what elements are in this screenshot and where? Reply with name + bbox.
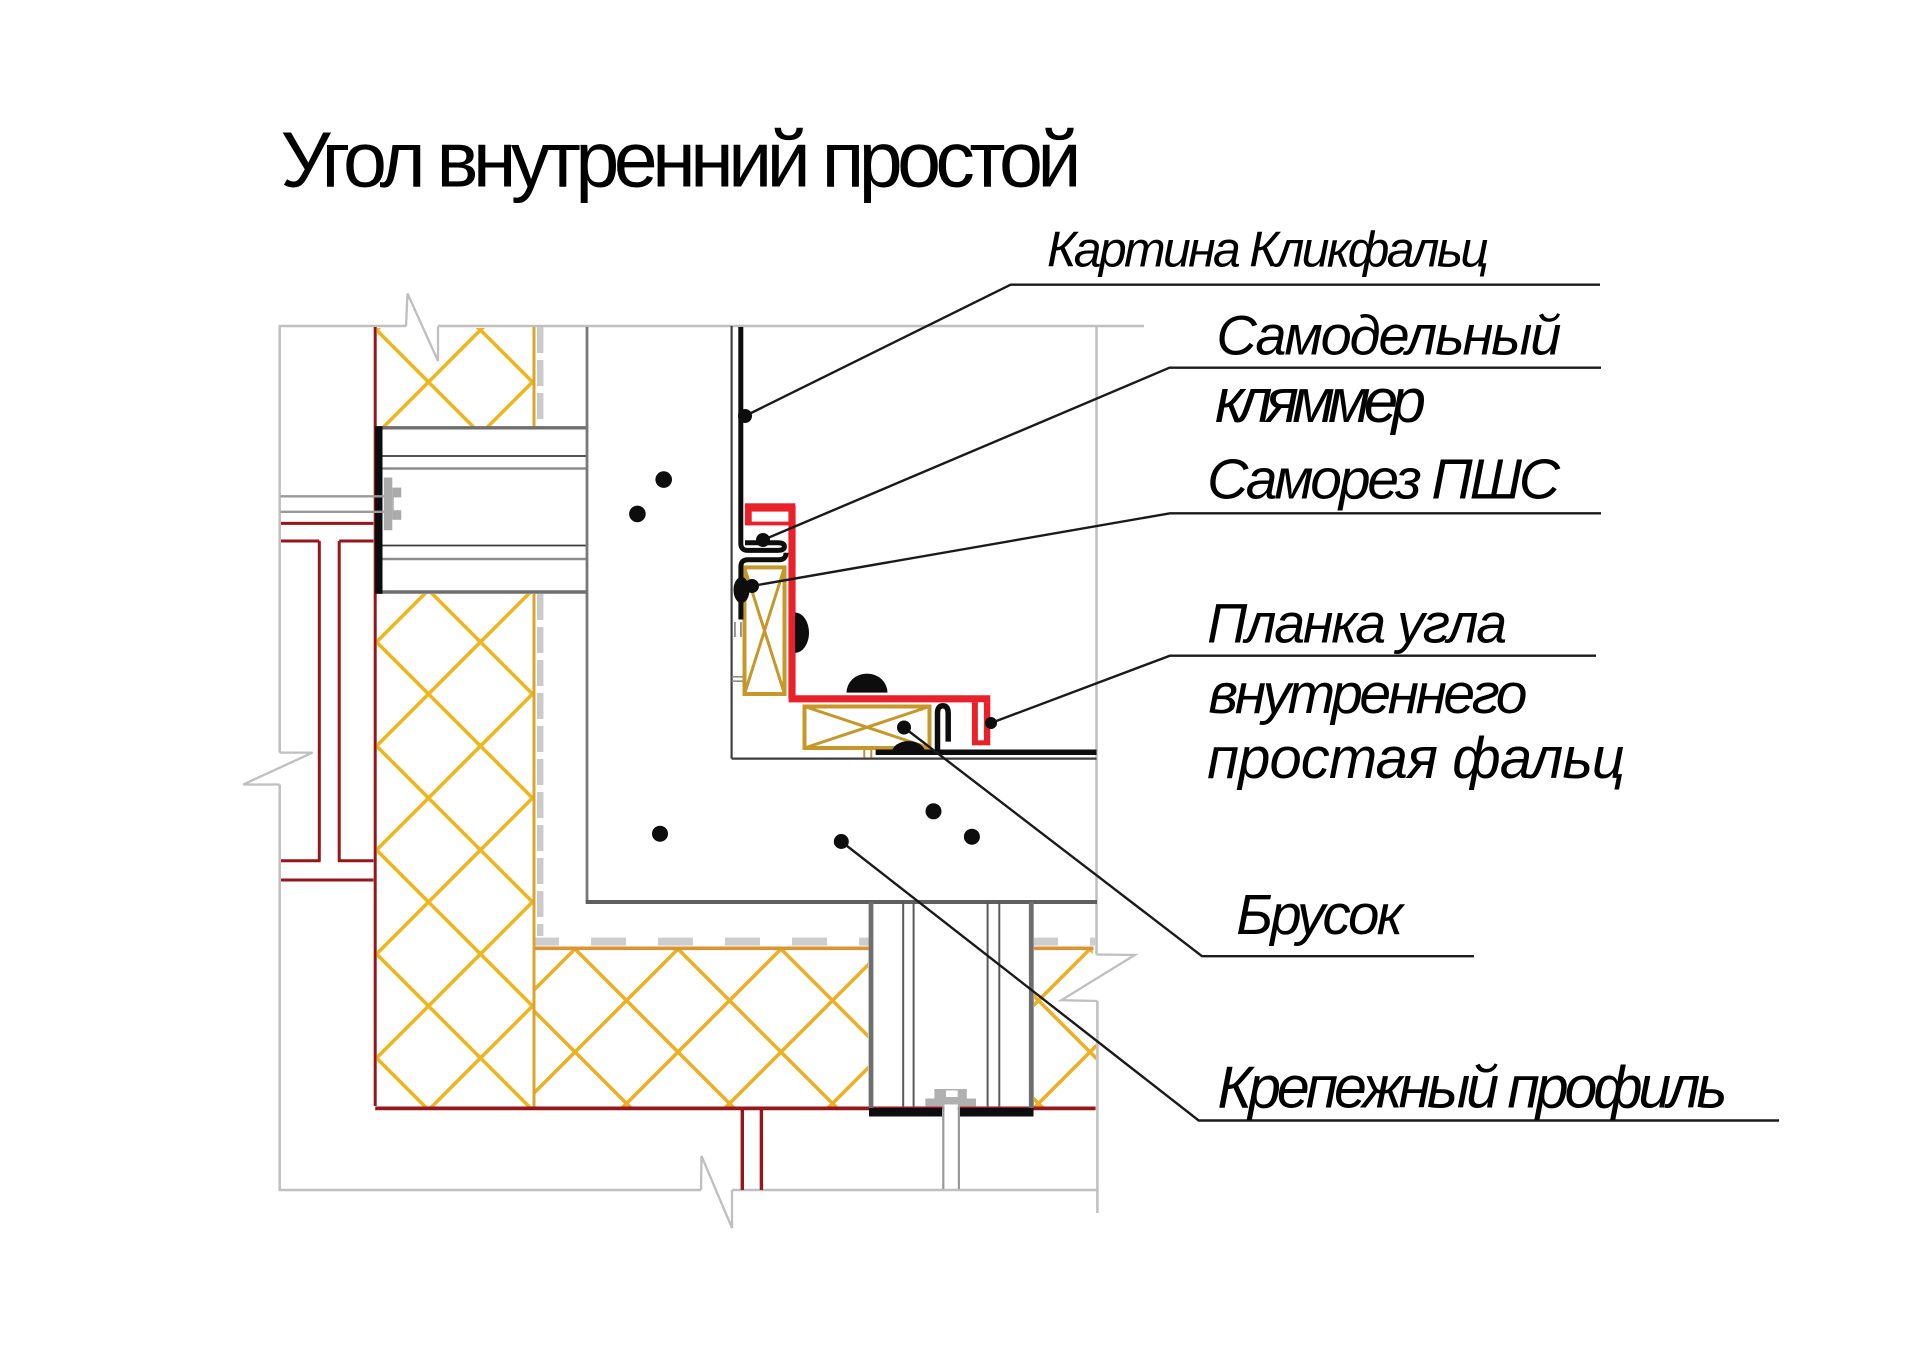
svg-text:Угол внутренний простой: Угол внутренний простой [281, 115, 1082, 204]
svg-text:Брусок: Брусок [1236, 883, 1405, 946]
svg-text:Планка угла: Планка угла [1207, 592, 1507, 654]
svg-text:Крепежный профиль: Крепежный профиль [1217, 1055, 1727, 1121]
svg-text:Картина Кликфальц: Картина Кликфальц [1047, 222, 1489, 278]
svg-text:Самодельный: Самодельный [1216, 304, 1561, 367]
svg-text:простая фальц: простая фальц [1207, 726, 1625, 791]
svg-text:Саморез ПШС: Саморез ПШС [1207, 448, 1561, 512]
svg-text:внутреннего: внутреннего [1208, 662, 1527, 726]
svg-text:кляммер: кляммер [1215, 367, 1426, 436]
